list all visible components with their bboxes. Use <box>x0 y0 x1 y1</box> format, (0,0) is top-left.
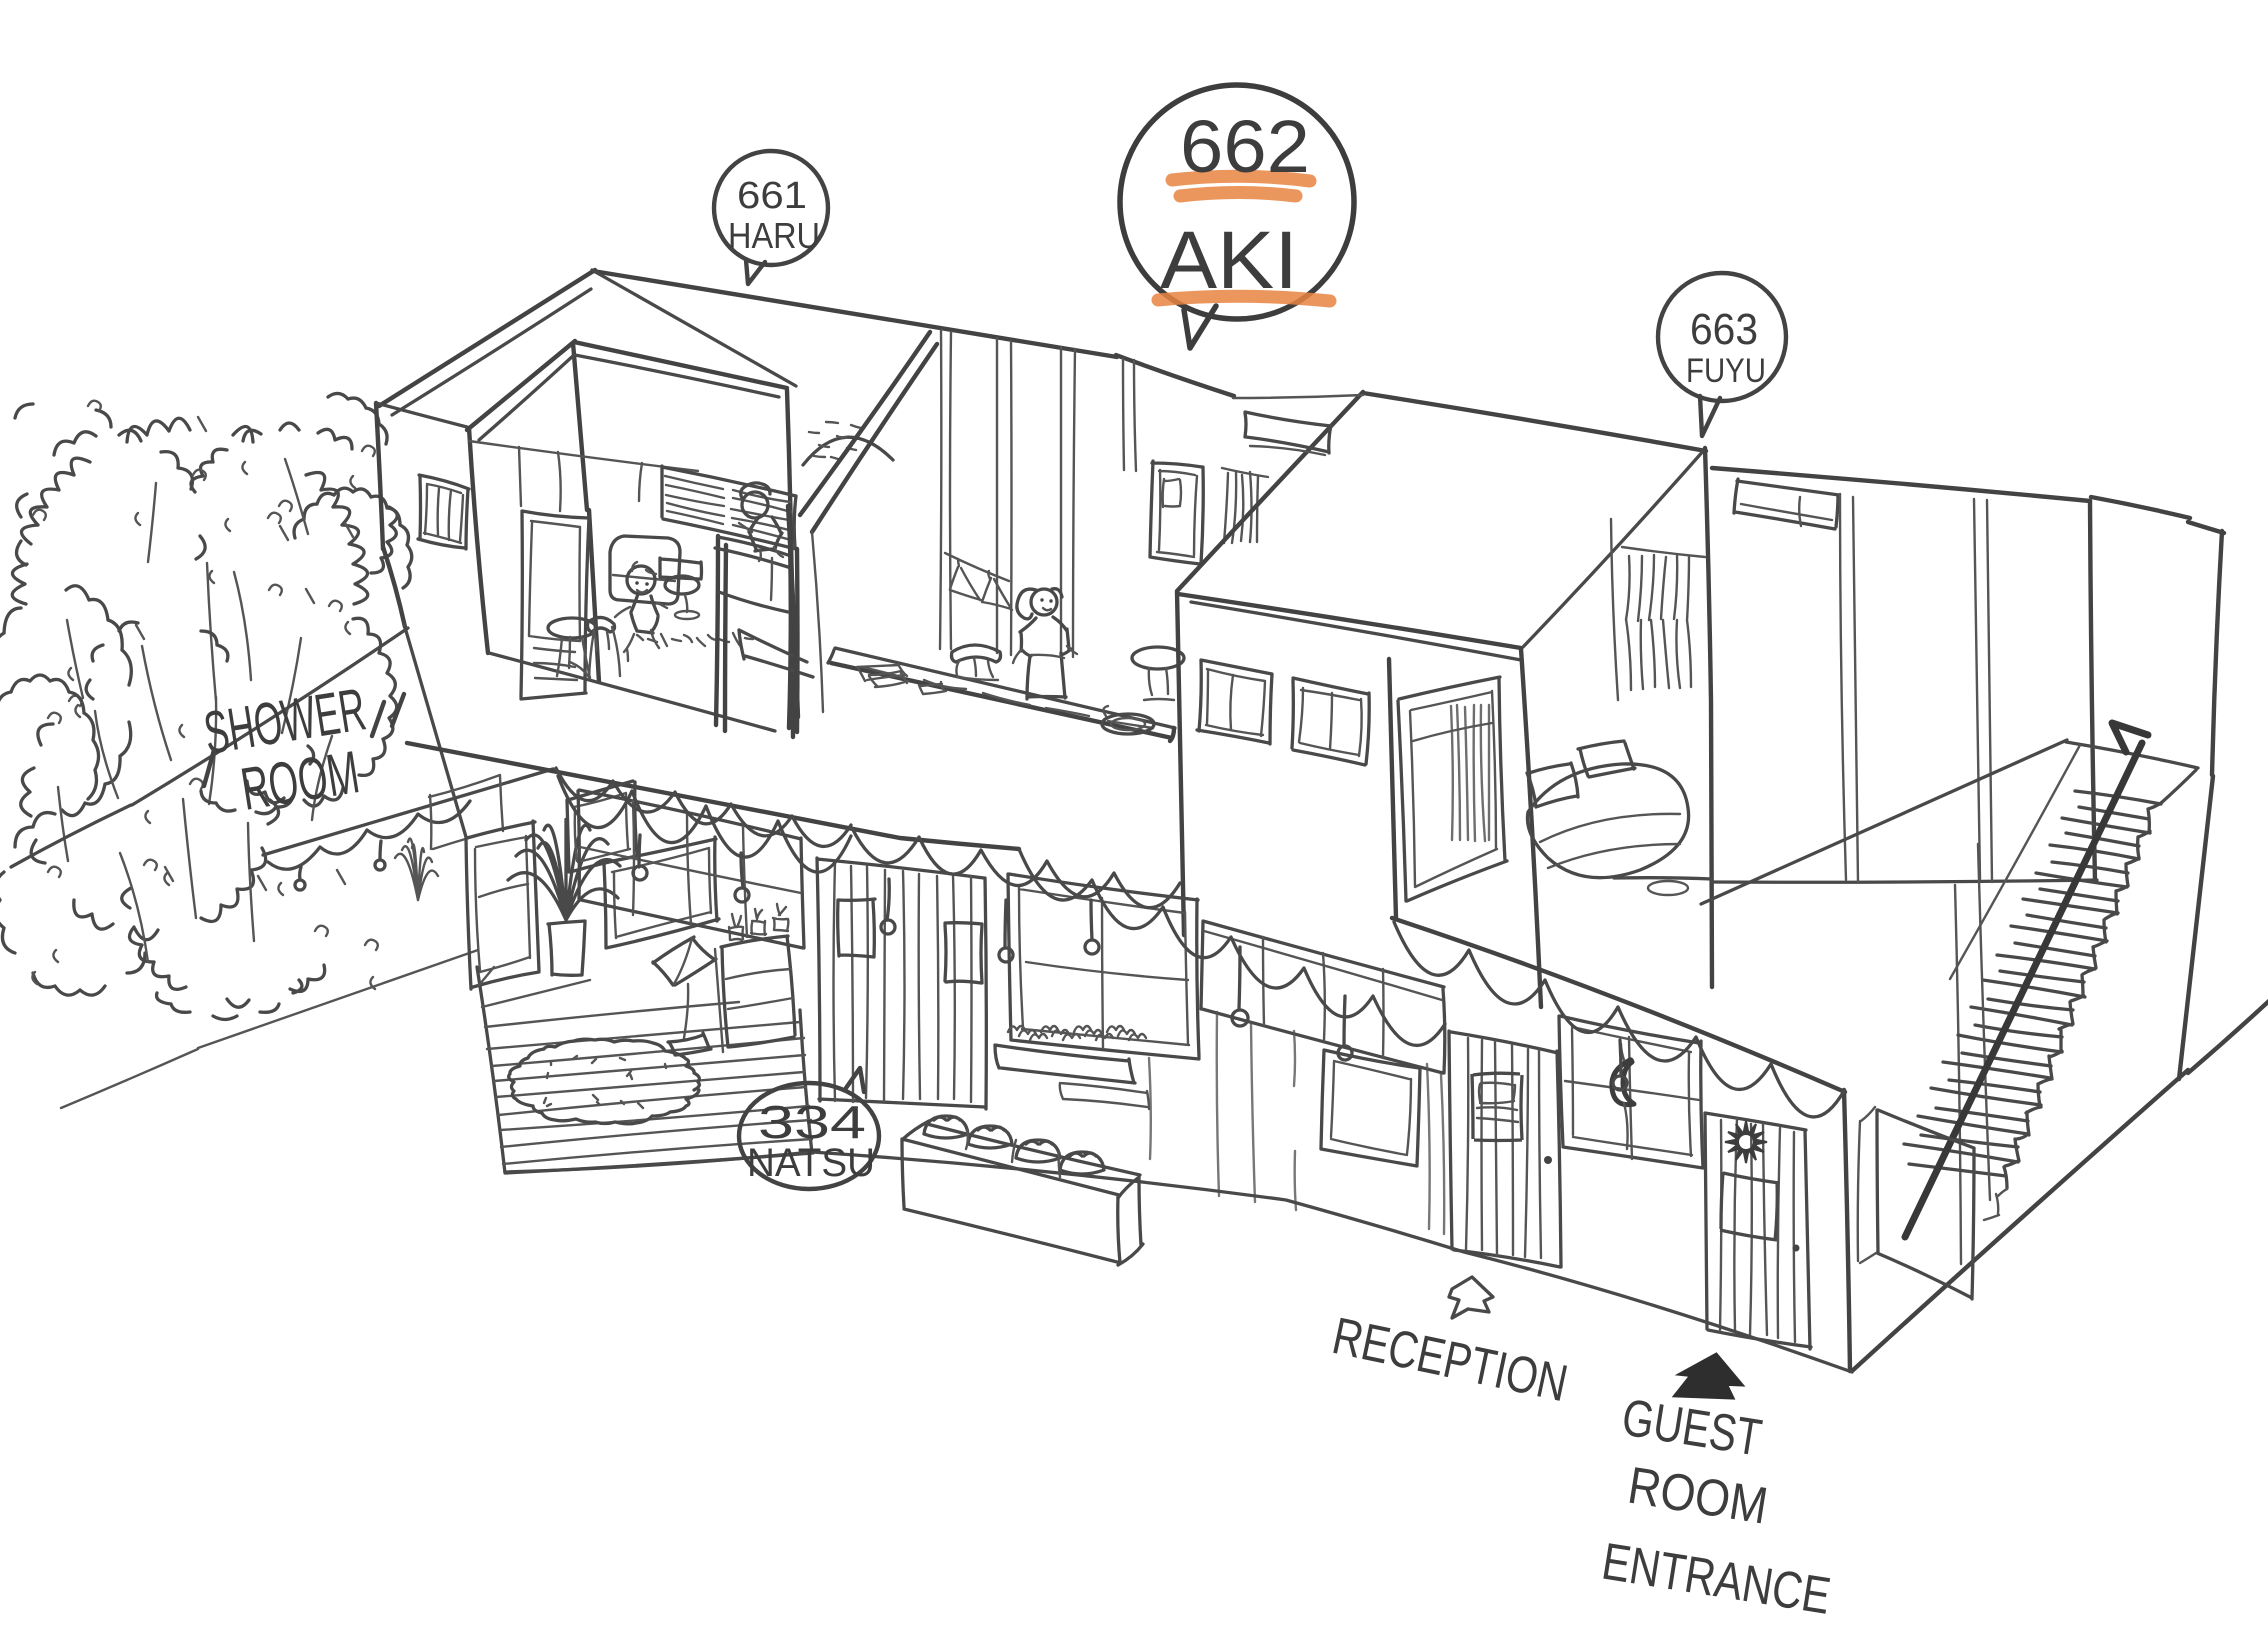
svg-text:661: 661 <box>737 175 807 217</box>
svg-text:NATSU: NATSU <box>747 1141 875 1185</box>
svg-text:AKI: AKI <box>1160 215 1298 306</box>
svg-text:FUYU: FUYU <box>1686 352 1766 390</box>
svg-text:662: 662 <box>1180 105 1310 188</box>
svg-text:HARU: HARU <box>728 215 820 256</box>
svg-text:663: 663 <box>1690 305 1758 354</box>
